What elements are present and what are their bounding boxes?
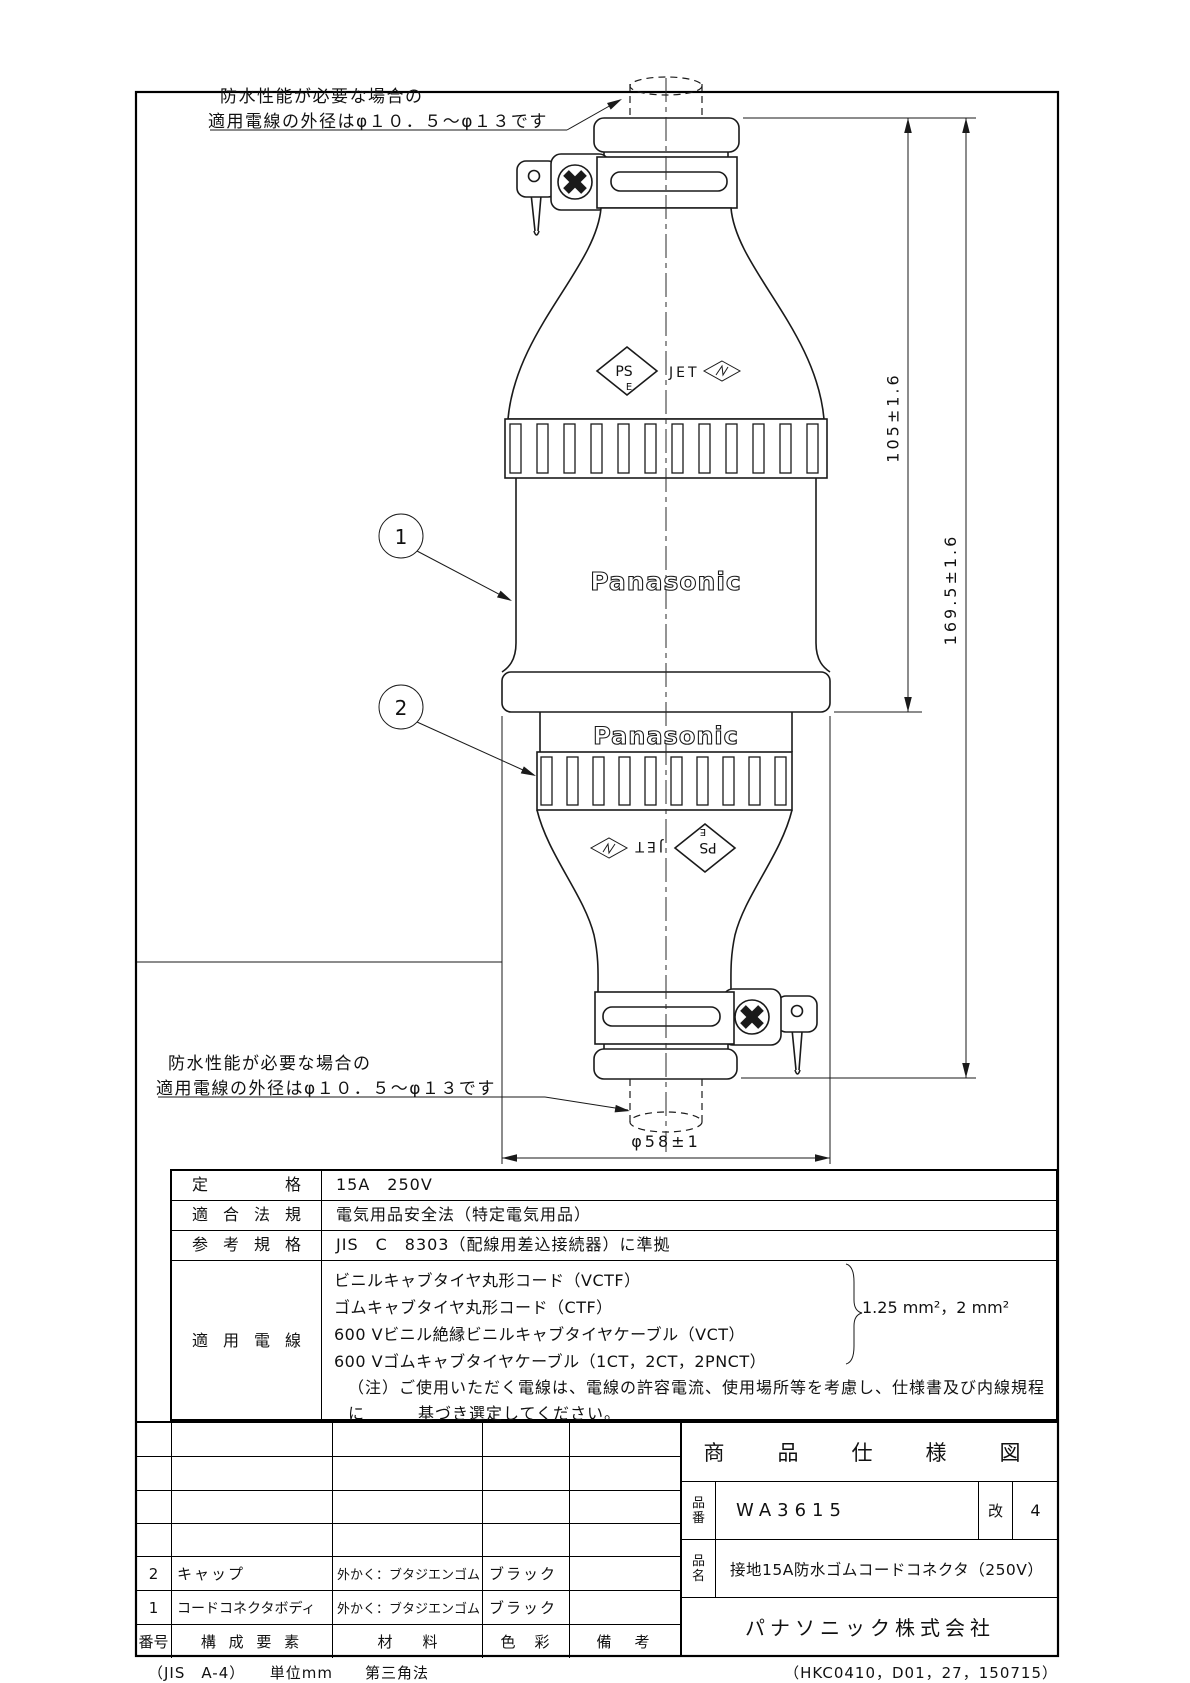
pse-jet-marks-bottom: PS E JET <box>591 824 735 872</box>
jet-text: JET <box>632 838 664 854</box>
part-number-label: 品番 <box>682 1482 716 1539</box>
spec-label-text: 適用電線 <box>192 1327 301 1355</box>
part-number: 2 <box>136 1557 172 1590</box>
top-waterproof-note-line2: 適用電線の外径はφ１０．５〜φ１３です <box>208 107 548 132</box>
spec-row-rating: 定格 15A 250V <box>172 1171 1056 1201</box>
part-color: ブラック <box>483 1591 570 1624</box>
part-number: 1 <box>136 1591 172 1624</box>
small-diamond-icon <box>591 838 627 858</box>
wire-type-line: 600 Vゴムキャブタイヤケーブル（1CT，2CT，2PNCT） <box>322 1348 1056 1375</box>
spec-drawing-page: PS E JET PS E JET Panasonic Panasonic <box>0 0 1190 1683</box>
company-name: パナソニック株式会社 <box>682 1598 1058 1654</box>
spec-label: 適用電線 <box>172 1261 322 1421</box>
spec-row-law: 適合法規 電気用品安全法（特定電気用品） <box>172 1201 1056 1231</box>
clamp-band-slot <box>603 1007 720 1026</box>
part-number-label-text: 品番 <box>691 1496 706 1526</box>
part-remark <box>570 1557 680 1590</box>
product-name-label-text: 品名 <box>691 1554 706 1584</box>
product-name-row: 品名 接地15A防水ゴムコードコネクタ（250V） <box>682 1540 1058 1598</box>
part-name: キャップ <box>172 1557 333 1590</box>
dim-dia58-text: φ58±1 <box>606 1132 726 1151</box>
part-material: 外かく：ブタジエンゴム <box>333 1591 483 1624</box>
cap-grip-band <box>537 752 792 810</box>
clamp-pin-hole <box>792 1006 803 1017</box>
parts-empty-row <box>136 1524 680 1557</box>
parts-empty-row <box>136 1457 680 1491</box>
balloon-1-number: 1 <box>395 525 408 549</box>
header-name: 構 成 要 素 <box>172 1625 333 1658</box>
spec-value: JIS C 8303（配線用差込接続器）に準拠 <box>322 1231 1056 1260</box>
header-color: 色 彩 <box>483 1625 570 1658</box>
panasonic-logo-cap: Panasonic <box>593 722 739 750</box>
product-name-label: 品名 <box>682 1540 716 1597</box>
footer-standard-note: （JIS A-4） 単位mm 第三角法 <box>148 1662 429 1683</box>
cap-bell-right <box>731 810 792 992</box>
spec-label: 定格 <box>172 1171 322 1200</box>
clamp-strap-wire <box>795 1070 800 1074</box>
parts-empty-row <box>136 1491 680 1524</box>
revision-value: 4 <box>1012 1482 1058 1539</box>
title-block: 商 品 仕 様 図 品番 WA3615 改 4 品名 接地15A防水ゴムコードコ… <box>680 1421 1058 1656</box>
dim-105-text: 105±1.6 <box>884 358 903 478</box>
pse-e-text: E <box>700 826 706 837</box>
part-name: コードコネクタボディ <box>172 1591 333 1624</box>
part-remark <box>570 1591 680 1624</box>
header-remark: 備 考 <box>570 1625 680 1658</box>
spec-row-standard: 参考規格 JIS C 8303（配線用差込接続器）に準拠 <box>172 1231 1056 1261</box>
top-waterproof-note-line1: 防水性能が必要な場合の <box>220 82 424 107</box>
spec-label: 参考規格 <box>172 1231 322 1260</box>
spec-wires-value: ビニルキャブタイヤ丸形コード（VCTF） ゴムキャブタイヤ丸形コード（CTF） … <box>322 1261 1056 1421</box>
wire-type-line: ビニルキャブタイヤ丸形コード（VCTF） <box>322 1267 1056 1294</box>
wire-note-line1: （注）ご使用いただく電線は、電線の許容電流、使用場所等を考慮し、仕様書及び内線規… <box>322 1375 1056 1401</box>
footer-document-code: （HKC0410，D01，27，150715） <box>700 1662 1058 1683</box>
part-color: ブラック <box>483 1557 570 1590</box>
pse-ps-text: PS <box>615 364 632 380</box>
parts-row-cap: 2 キャップ 外かく：ブタジエンゴム ブラック <box>136 1557 680 1591</box>
clamp-pin-hole <box>529 171 540 182</box>
spec-value: 電気用品安全法（特定電気用品） <box>322 1201 1056 1230</box>
dim-169-text: 169.5±1.6 <box>941 517 960 662</box>
wire-size-note: 1.25 mm²，2 mm² <box>862 1294 1009 1318</box>
balloon-callouts: 1 2 <box>379 514 538 779</box>
panasonic-logo-body: Panasonic <box>590 567 741 596</box>
parts-list-table: 2 キャップ 外かく：ブタジエンゴム ブラック 1 コードコネクタボディ 外かく… <box>136 1421 680 1656</box>
parts-header-row: 番号 構 成 要 素 材 料 色 彩 備 考 <box>136 1625 680 1658</box>
part-material: 外かく：ブタジエンゴム <box>333 1557 483 1590</box>
header-material: 材 料 <box>333 1625 483 1658</box>
spec-row-wires: 適用電線 ビニルキャブタイヤ丸形コード（VCTF） ゴムキャブタイヤ丸形コード（… <box>172 1261 1056 1421</box>
parts-empty-row <box>136 1423 680 1457</box>
clamp-band-slot <box>611 172 727 191</box>
clamp-strap-wire <box>534 231 539 235</box>
spec-value: 15A 250V <box>322 1171 1056 1200</box>
bottom-waterproof-note-line1: 防水性能が必要な場合の <box>168 1049 372 1074</box>
pse-e-text: E <box>626 382 632 393</box>
jet-text: JET <box>668 365 700 381</box>
cap-bell-left <box>537 810 598 992</box>
small-mark-glyph <box>603 844 615 853</box>
wire-type-line: 600 Vビニル絶縁ビニルキャブタイヤケーブル（VCT） <box>322 1321 1056 1348</box>
part-number-value: WA3615 <box>716 1482 978 1539</box>
spec-label: 適合法規 <box>172 1201 322 1230</box>
part-number-row: 品番 WA3615 改 4 <box>682 1482 1058 1540</box>
header-number: 番号 <box>136 1625 172 1658</box>
balloon-2-number: 2 <box>395 696 408 720</box>
drawing-title: 商 品 仕 様 図 <box>682 1423 1058 1482</box>
parts-row-body: 1 コードコネクタボディ 外かく：ブタジエンゴム ブラック <box>136 1591 680 1625</box>
revision-label: 改 <box>978 1482 1012 1539</box>
cap-part <box>537 712 817 1079</box>
product-name-value: 接地15A防水ゴムコードコネクタ（250V） <box>716 1540 1058 1597</box>
pse-ps-text: PS <box>699 839 716 855</box>
bottom-waterproof-note-line2: 適用電線の外径はφ１０．５〜φ１３です <box>156 1074 496 1099</box>
